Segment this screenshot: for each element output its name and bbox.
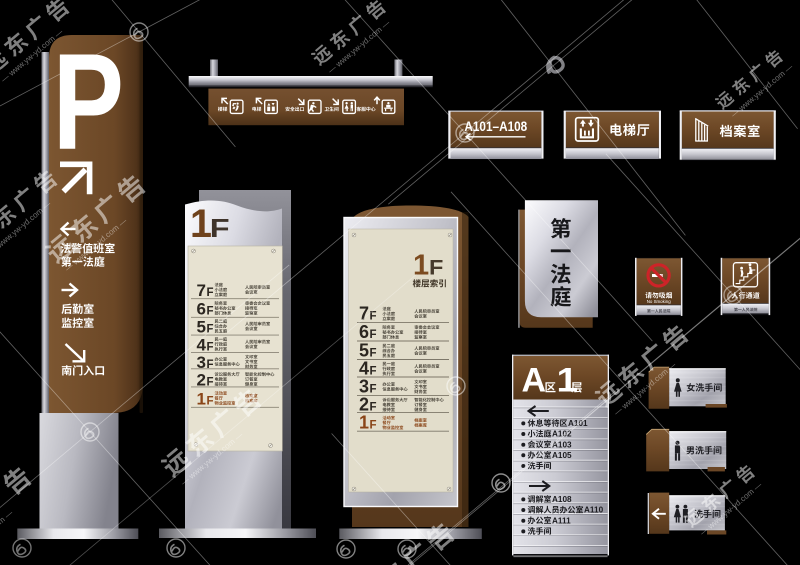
svg-text:F: F [370, 311, 377, 323]
svg-text:F: F [370, 348, 377, 360]
svg-text:F: F [370, 402, 377, 414]
svg-text:1: 1 [359, 413, 369, 433]
svg-text:7: 7 [197, 281, 206, 300]
svg-text:2: 2 [359, 395, 369, 415]
svg-text:5: 5 [197, 318, 206, 337]
svg-text:— www.yw-yd.com —: — www.yw-yd.com — [0, 508, 15, 565]
svg-text:No Smoking: No Smoking [647, 299, 671, 304]
svg-text:A: A [522, 362, 547, 400]
svg-text:— www.yw-yd.com —: — www.yw-yd.com — [326, 18, 391, 75]
svg-text:A102: A102 [552, 430, 572, 439]
svg-text:3: 3 [359, 377, 369, 397]
svg-text:5: 5 [359, 341, 369, 361]
svg-text:F: F [207, 287, 214, 299]
svg-text:F: F [370, 329, 377, 341]
svg-text:F: F [207, 306, 214, 318]
svg-text:F: F [370, 420, 377, 432]
svg-text:4: 4 [359, 359, 369, 379]
svg-text:A111: A111 [552, 516, 571, 525]
svg-text:A110: A110 [584, 506, 604, 515]
svg-text:F: F [210, 214, 230, 243]
svg-text:F: F [207, 342, 214, 354]
svg-text:A108: A108 [552, 495, 572, 504]
svg-text:1: 1 [190, 202, 212, 246]
svg-text:1: 1 [557, 360, 578, 399]
svg-text:6: 6 [359, 322, 369, 342]
svg-text:6: 6 [197, 300, 206, 319]
svg-text:F: F [207, 396, 214, 408]
svg-text:F: F [370, 384, 377, 396]
svg-text:F: F [370, 366, 377, 378]
svg-text:1: 1 [413, 250, 429, 282]
svg-text:7: 7 [359, 304, 369, 324]
svg-text:A101: A101 [568, 419, 588, 428]
svg-text:A105: A105 [552, 451, 572, 460]
svg-text:P: P [53, 26, 124, 179]
svg-text:1: 1 [197, 390, 206, 409]
svg-text:F: F [429, 256, 443, 280]
